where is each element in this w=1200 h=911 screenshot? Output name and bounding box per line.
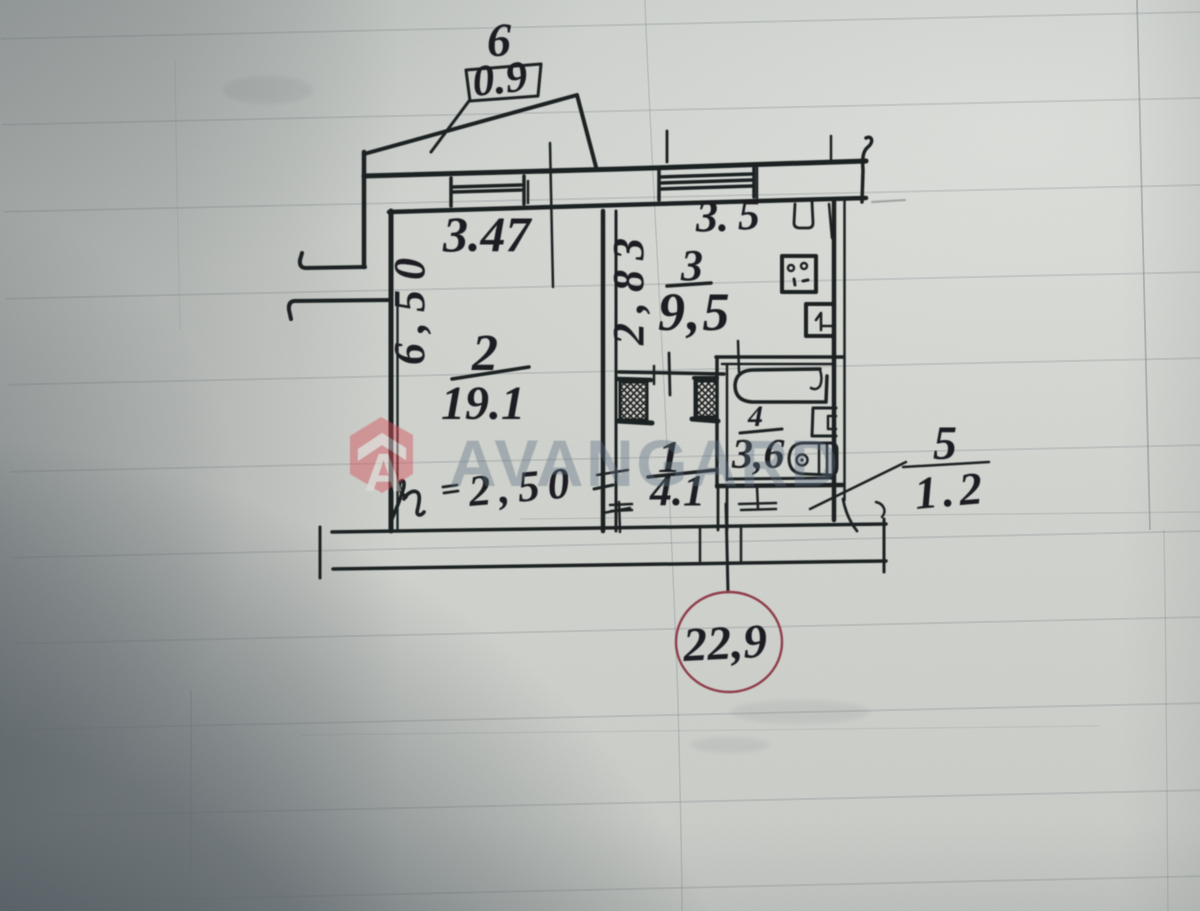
svg-text:3.47: 3.47 [442, 206, 533, 262]
svg-text:2,83: 2,83 [604, 228, 653, 346]
svg-text:1.2: 1.2 [912, 462, 989, 519]
svg-text:9,5: 9,5 [658, 282, 732, 342]
svg-text:5: 5 [738, 190, 760, 239]
svg-text:5: 5 [933, 417, 957, 470]
svg-text:3.: 3. [695, 192, 729, 241]
svg-text:2: 2 [471, 325, 498, 382]
svg-text:0.9: 0.9 [470, 51, 530, 105]
svg-text:A: A [364, 443, 403, 503]
svg-text:6,50: 6,50 [385, 248, 434, 365]
svg-text:19.1: 19.1 [441, 377, 525, 430]
svg-text:22,9: 22,9 [681, 615, 769, 672]
svg-text:AVANGARD: AVANGARD [449, 426, 841, 500]
